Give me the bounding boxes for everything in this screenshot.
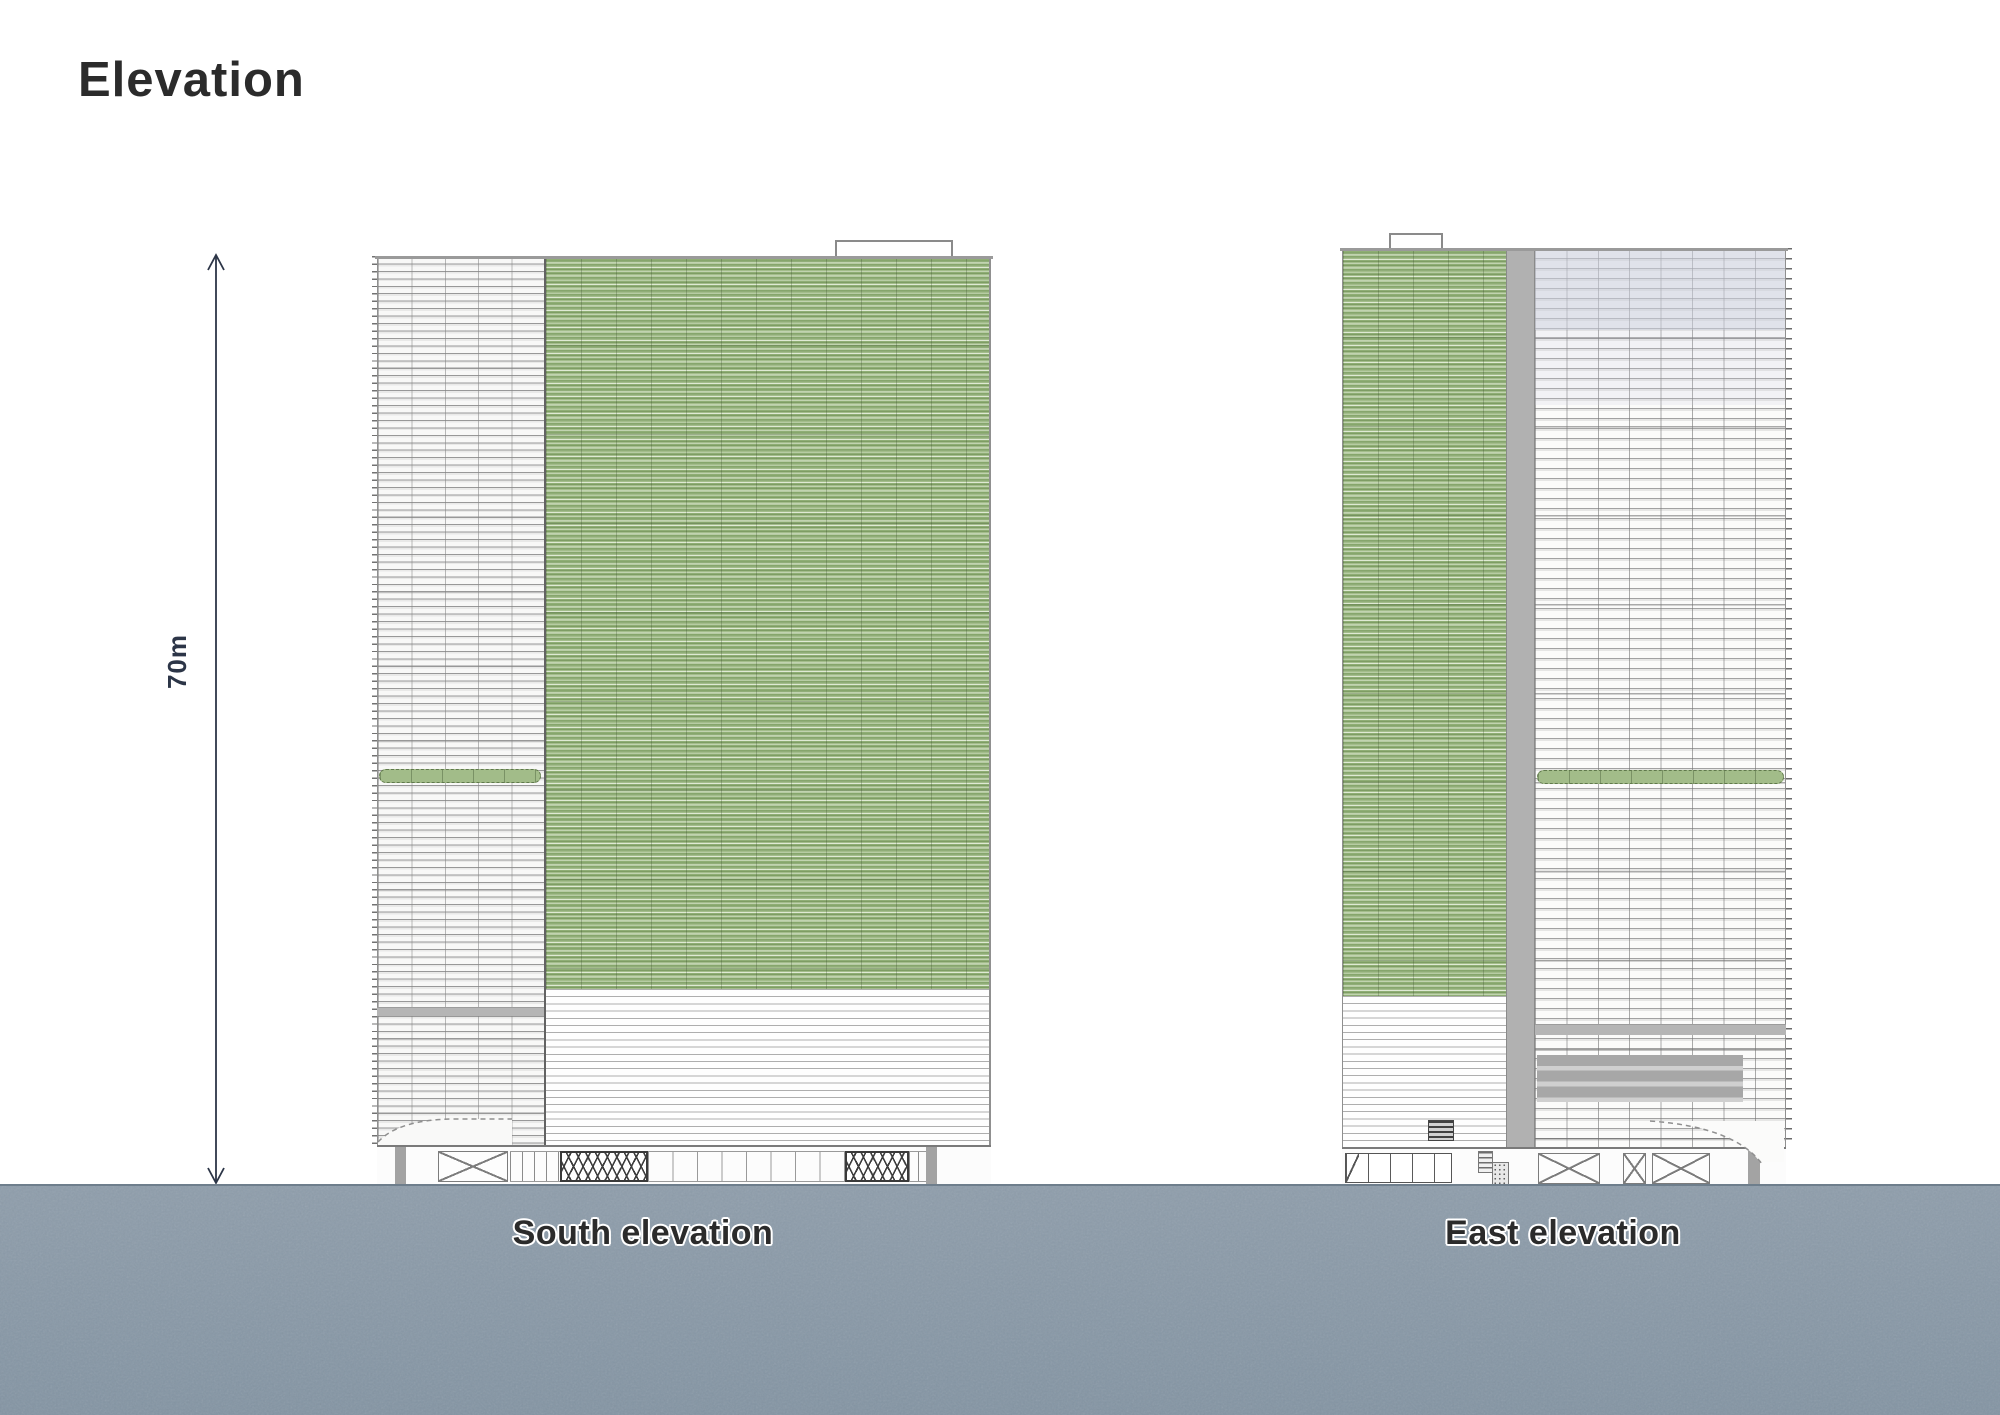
height-dimension-arrow-icon — [208, 255, 224, 1183]
east-ground-floor — [1342, 1147, 1786, 1185]
east-roof-cap-line — [1340, 248, 1788, 251]
south-glazing-mullions-right — [909, 1151, 927, 1182]
east-hatch-block — [1492, 1162, 1509, 1185]
ground-plane: South elevation East elevation — [0, 1184, 2000, 1415]
south-glazing-mullions-dense — [510, 1151, 560, 1182]
east-green-louvre-wall — [1342, 248, 1506, 996]
south-right-edge-line — [989, 256, 991, 1145]
south-column-right — [926, 1147, 937, 1185]
east-right-curtainwall-panel — [1535, 248, 1786, 1147]
east-planter-band — [1537, 770, 1784, 784]
south-x-brace-panel — [438, 1151, 508, 1182]
south-roof-cap-line — [375, 256, 993, 259]
south-folding-door-left — [560, 1151, 648, 1182]
east-vent-grille — [1428, 1120, 1454, 1141]
east-x-brace-panel-2 — [1623, 1153, 1646, 1184]
east-elevation-caption: East elevation — [1256, 1214, 1870, 1253]
south-ground-floor — [377, 1145, 991, 1185]
south-gray-spandrel-band — [377, 1007, 544, 1016]
south-planter-band — [379, 769, 541, 783]
east-gray-spandrel-band — [1535, 1024, 1786, 1035]
east-door-leaf-diagonal — [1346, 1154, 1359, 1182]
east-service-core-strip — [1506, 248, 1535, 1185]
east-lower-louvre-band — [1342, 996, 1506, 1147]
east-x-brace-panel-1 — [1538, 1153, 1600, 1184]
page-title: Elevation — [78, 52, 305, 108]
south-lower-louvre-band — [544, 989, 991, 1145]
east-gray-louvre-block — [1537, 1055, 1743, 1102]
height-dimension-label: 70m — [162, 634, 193, 689]
south-green-louvre-wall — [544, 256, 991, 989]
east-upper-tinted-band — [1535, 330, 1785, 405]
south-elevation-caption: South elevation — [336, 1214, 950, 1253]
east-column-right — [1748, 1149, 1760, 1185]
elevation-sheet: Elevation 70m — [0, 0, 2000, 1415]
east-stair — [1478, 1151, 1493, 1173]
south-folding-door-right — [845, 1151, 909, 1182]
east-rooftop-plant-box — [1389, 233, 1443, 248]
south-elevation-drawing — [377, 256, 991, 1145]
east-top-tinted-band — [1535, 248, 1785, 330]
east-x-brace-panel-3 — [1652, 1153, 1710, 1184]
south-glazing-mullions-wide — [648, 1151, 845, 1182]
south-column-left — [395, 1147, 406, 1185]
east-louvre-end-ticks — [1786, 248, 1792, 1147]
east-folding-door-group — [1345, 1153, 1452, 1183]
east-elevation-drawing — [1342, 248, 1786, 1147]
south-rooftop-plant-box — [835, 240, 953, 256]
